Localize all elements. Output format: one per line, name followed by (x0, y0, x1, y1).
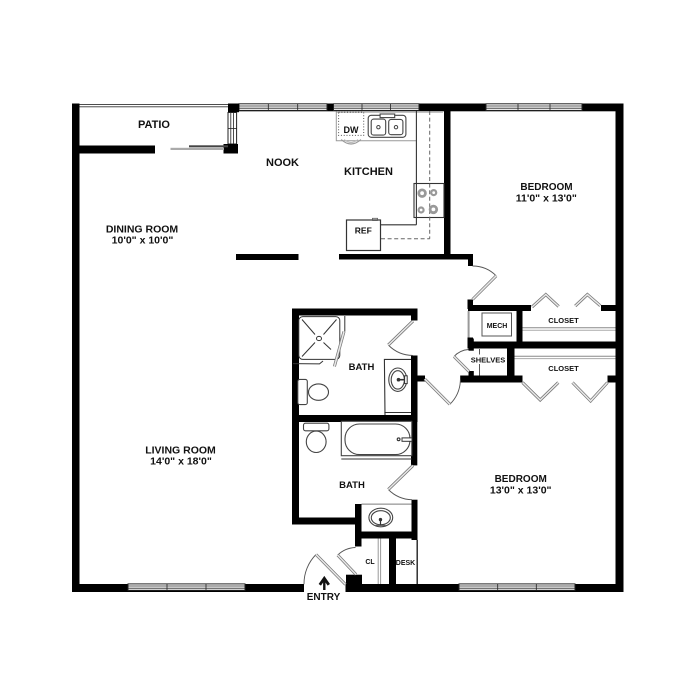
svg-text:DW: DW (344, 125, 359, 135)
svg-text:MECH: MECH (487, 323, 508, 330)
svg-text:BEDROOM: BEDROOM (495, 474, 547, 485)
svg-text:SHELVES: SHELVES (471, 355, 505, 364)
svg-text:BEDROOM: BEDROOM (520, 182, 572, 193)
svg-text:PATIO: PATIO (138, 119, 170, 131)
svg-text:NOOK: NOOK (266, 157, 299, 169)
svg-text:DESK: DESK (396, 560, 415, 567)
svg-text:BATH: BATH (339, 480, 365, 491)
svg-text:CLOSET: CLOSET (548, 364, 579, 373)
svg-text:BATH: BATH (349, 362, 375, 373)
svg-text:ENTRY: ENTRY (307, 592, 341, 603)
svg-text:11'0" x 13'0": 11'0" x 13'0" (516, 193, 577, 205)
svg-text:CLOSET: CLOSET (548, 316, 579, 325)
svg-text:14'0" x 18'0": 14'0" x 18'0" (150, 456, 212, 468)
svg-text:13'0" x 13'0": 13'0" x 13'0" (490, 485, 552, 497)
svg-text:REF: REF (355, 225, 372, 235)
svg-text:CL: CL (365, 559, 375, 566)
svg-text:10'0" x 10'0": 10'0" x 10'0" (112, 234, 174, 246)
svg-text:KITCHEN: KITCHEN (344, 166, 393, 178)
